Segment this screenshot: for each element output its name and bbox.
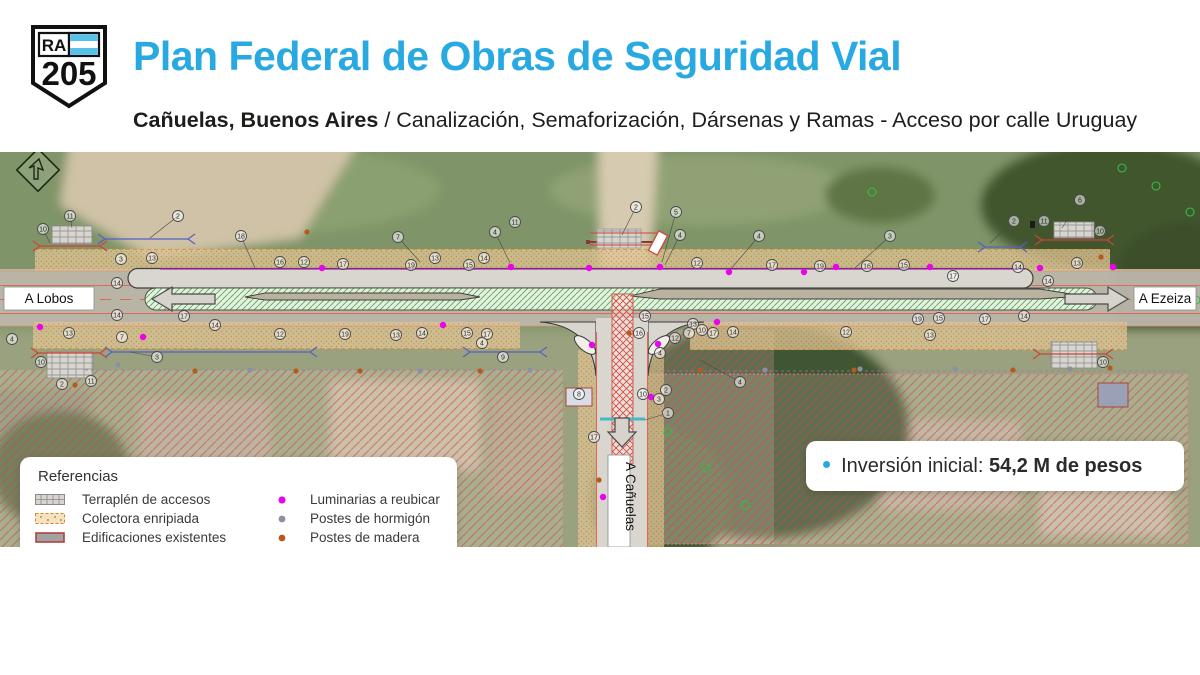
callout-number: 4 xyxy=(757,233,761,240)
wood-post-marker xyxy=(626,330,631,335)
callout-number: 15 xyxy=(935,315,943,322)
luminaire-marker xyxy=(440,322,446,328)
callout-number: 2 xyxy=(176,213,180,220)
legend-item: Postes de madera xyxy=(260,528,457,547)
callout-number: 17 xyxy=(981,316,989,323)
callout-number: 2 xyxy=(664,387,668,394)
callout-number: 19 xyxy=(816,263,824,270)
callout-number: 11 xyxy=(66,213,73,220)
callout-number: 11 xyxy=(511,219,518,226)
callout-number: 3 xyxy=(657,396,661,403)
investment-text: Inversión inicial: 54,2 M de pesos xyxy=(841,455,1142,478)
legend-item: Luminarias a reubicar xyxy=(260,490,457,509)
callout-number: 3 xyxy=(155,354,159,361)
callout-number: 14 xyxy=(113,312,121,319)
callout-number: 15 xyxy=(900,262,908,269)
luminaire-marker xyxy=(657,264,663,270)
callout-number: 8 xyxy=(577,391,581,398)
callout-number: 4 xyxy=(493,229,497,236)
callout-number: 13 xyxy=(392,332,400,339)
wood-post-marker xyxy=(304,229,309,234)
callout-number: 12 xyxy=(671,335,679,342)
legend-item: Edificaciones existentes xyxy=(20,528,260,547)
concrete-post-marker xyxy=(1067,366,1072,371)
callout-number: 19 xyxy=(341,331,349,338)
callout-number: 4 xyxy=(678,232,682,239)
label-west: A Lobos xyxy=(25,291,74,306)
concrete-post-marker xyxy=(247,367,252,372)
callout-number: 9 xyxy=(501,354,505,361)
callout-number: 6 xyxy=(1078,197,1082,204)
callout-number: 17 xyxy=(709,330,717,337)
callout-number: 2 xyxy=(634,204,638,211)
luminaire-marker xyxy=(37,324,43,330)
concrete-post-marker xyxy=(527,367,532,372)
callout-number: 1 xyxy=(666,410,670,417)
luminaire-marker xyxy=(801,269,807,275)
wood-post-marker xyxy=(72,382,77,387)
existing-buildings-swatch xyxy=(28,532,72,543)
callout-number: 13 xyxy=(148,255,156,262)
concrete-post-marker xyxy=(417,368,422,373)
callout-number: 17 xyxy=(483,331,491,338)
callout-number: 17 xyxy=(949,273,957,280)
callout-number: 10 xyxy=(639,391,647,398)
infographic-frame: RA 205 Plan Federal de Obras de Segurida… xyxy=(0,0,1200,675)
callout-number: 12 xyxy=(842,329,850,336)
luminaire-marker xyxy=(319,265,325,271)
km-marker xyxy=(1030,221,1035,228)
luminaire-marker xyxy=(655,341,661,347)
legend-title: Referencias xyxy=(38,468,118,485)
callout-number: 11 xyxy=(87,378,94,385)
callout-number: 14 xyxy=(418,330,426,337)
concrete-post-marker xyxy=(952,366,957,371)
callout-number: 16 xyxy=(635,330,643,337)
callout-number: 3 xyxy=(119,256,123,263)
gravel-collector-swatch xyxy=(28,513,72,524)
median-island xyxy=(245,293,480,300)
callout-number: 16 xyxy=(276,259,284,266)
wood-post-marker xyxy=(1098,254,1103,259)
callout-number: 14 xyxy=(211,322,219,329)
luminaire-marker xyxy=(927,264,933,270)
callout-number: 15 xyxy=(463,330,471,337)
callout-number: 13 xyxy=(431,255,439,262)
callout-number: 12 xyxy=(276,331,284,338)
callout-number: 16 xyxy=(863,263,871,270)
luminaire-marker xyxy=(1037,265,1043,271)
callout-number: 4 xyxy=(738,379,742,386)
wood-post-marker xyxy=(293,368,298,373)
subtitle-location: Cañuelas, Buenos Aires xyxy=(133,108,378,132)
label-south: A Cañuelas xyxy=(623,462,638,531)
luminaire-marker xyxy=(586,265,592,271)
bullet-icon: • xyxy=(822,449,831,480)
concrete-post-marker xyxy=(115,362,120,367)
callout-number: 14 xyxy=(1014,264,1022,271)
wood-post-marker xyxy=(192,368,197,373)
callout-number: 4 xyxy=(10,336,14,343)
wood-post-marker xyxy=(477,368,482,373)
wood-post-marker xyxy=(697,367,702,372)
wood-post-marker xyxy=(596,477,601,482)
callout-number: 14 xyxy=(1044,278,1052,285)
concrete-post-marker xyxy=(762,367,767,372)
luminaire-marker xyxy=(589,342,595,348)
wood-post-swatch xyxy=(264,533,300,543)
luminaire-marker xyxy=(1110,264,1116,270)
callout-number: 12 xyxy=(693,260,701,267)
luminaire-marker xyxy=(726,269,732,275)
page-title: Plan Federal de Obras de Seguridad Vial xyxy=(133,33,901,80)
callout-number: 2 xyxy=(60,381,64,388)
legend-item: Colectora enripiada xyxy=(20,509,260,528)
callout-number: 4 xyxy=(480,340,484,347)
label-east: A Ezeiza xyxy=(1139,291,1192,306)
callout-number: 7 xyxy=(396,234,400,241)
existing-building xyxy=(1098,383,1128,407)
callout-number: 13 xyxy=(1073,260,1081,267)
callout-number: 14 xyxy=(480,255,488,262)
callout-number: 17 xyxy=(339,261,347,268)
wood-post-marker xyxy=(357,368,362,373)
callout-number: 2 xyxy=(1012,218,1016,225)
callout-number: 17 xyxy=(590,434,598,441)
wood-post-marker xyxy=(851,367,856,372)
callout-number: 10 xyxy=(1099,359,1107,366)
route-prefix: RA xyxy=(42,36,67,55)
callout-number: 18 xyxy=(237,233,245,240)
callout-number: 3 xyxy=(888,233,892,240)
embankment-swatch xyxy=(28,494,72,505)
route-number: 205 xyxy=(41,55,96,92)
route-shield-ra205: RA 205 xyxy=(30,24,108,110)
luminaire-marker xyxy=(508,264,514,270)
concrete-post-marker xyxy=(857,366,862,371)
callout-number: 13 xyxy=(926,332,934,339)
header: RA 205 Plan Federal de Obras de Segurida… xyxy=(0,0,1200,152)
callout-number: 13 xyxy=(65,330,73,337)
callout-number: 14 xyxy=(729,329,737,336)
callout-number: 10 xyxy=(39,226,47,233)
callout-number: 12 xyxy=(300,259,308,266)
callout-number: 10 xyxy=(37,359,45,366)
investment-amount: 54,2 M de pesos xyxy=(989,455,1142,477)
widened-pavement xyxy=(128,269,1033,289)
investment-callout: • Inversión inicial: 54,2 M de pesos xyxy=(806,441,1184,491)
footer: corredores viales Ministerio de Obras Pú… xyxy=(0,547,1200,675)
callout-number: 7 xyxy=(687,330,691,337)
callout-number: 15 xyxy=(465,262,473,269)
callout-number: 17 xyxy=(180,313,188,320)
callout-number: 11 xyxy=(1040,218,1047,225)
callout-number: 15 xyxy=(641,313,649,320)
luminaire-marker xyxy=(714,319,720,325)
luminaire-marker xyxy=(833,264,839,270)
callout-number: 7 xyxy=(120,334,124,341)
callout-number: 4 xyxy=(658,350,662,357)
callout-number: 14 xyxy=(1020,313,1028,320)
page-subtitle: Cañuelas, Buenos Aires / Canalización, S… xyxy=(133,108,1137,133)
callout-number: 17 xyxy=(768,262,776,269)
wood-post-marker xyxy=(1010,367,1015,372)
legend-item: Terraplén de accesos xyxy=(20,490,260,509)
median-island xyxy=(630,289,1083,299)
callout-number: 19 xyxy=(914,316,922,323)
luminaire-swatch xyxy=(264,495,300,505)
callout-number: 19 xyxy=(407,262,415,269)
callout-number: 5 xyxy=(674,209,678,216)
subtitle-works: Canalización, Semaforización, Dársenas y… xyxy=(396,108,1137,132)
legend-item: Postes de hormigón xyxy=(260,509,457,528)
luminaire-marker xyxy=(140,334,146,340)
callout-number: 10 xyxy=(698,327,706,334)
concrete-post-swatch xyxy=(264,514,300,524)
callout-number: 14 xyxy=(113,280,121,287)
callout-number: 10 xyxy=(1096,228,1104,235)
wood-post-marker xyxy=(1107,365,1112,370)
luminaire-marker xyxy=(600,494,606,500)
